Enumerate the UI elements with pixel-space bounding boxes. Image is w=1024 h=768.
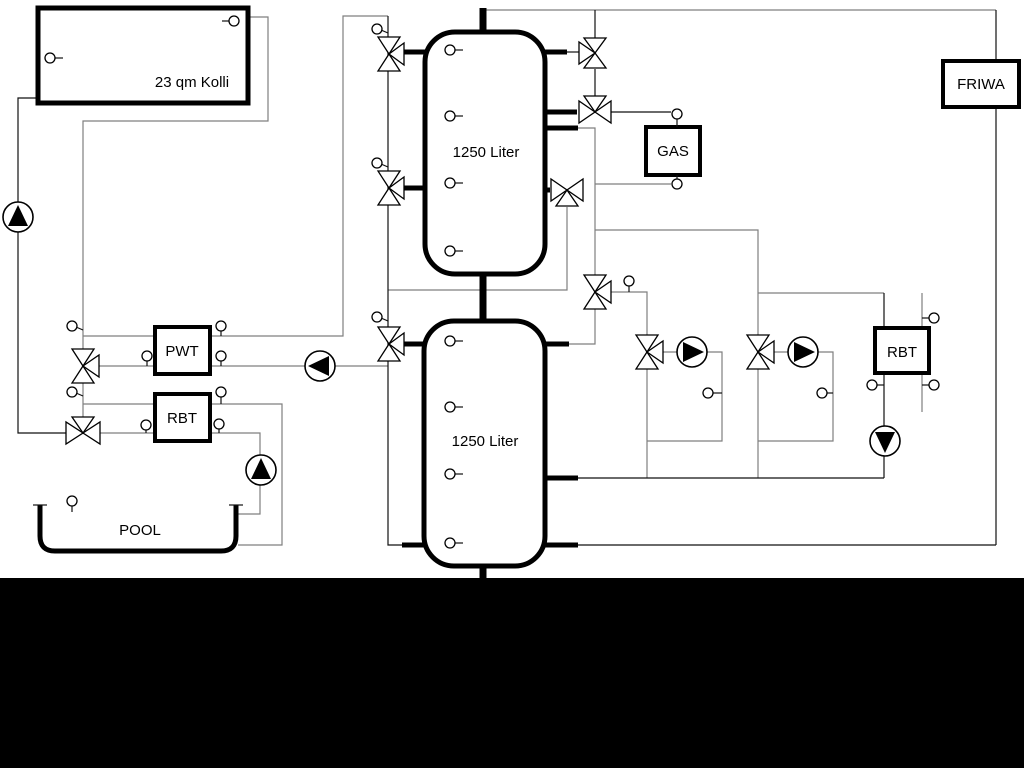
temperature-sensor-icon — [214, 419, 224, 433]
temperature-sensor-icon — [922, 313, 939, 323]
pwt-heat-exchanger: PWT — [155, 327, 210, 374]
solar-collector: 23 qm Kolli — [38, 8, 248, 103]
temperature-sensor-icon — [867, 380, 884, 390]
pump-icon — [677, 337, 707, 367]
temperature-sensor-icon — [216, 321, 226, 336]
gas-label: GAS — [657, 143, 689, 160]
rbt-right-label: RBT — [887, 344, 917, 361]
gas-boiler: GAS — [646, 127, 700, 175]
temperature-sensor-icon — [922, 380, 939, 390]
three-way-valve-icon — [378, 327, 404, 361]
pump-icon — [870, 426, 900, 456]
three-way-valve-icon — [579, 96, 611, 123]
three-way-valve-icon — [378, 37, 404, 71]
three-way-valve-icon — [378, 171, 404, 205]
temperature-sensor-icon — [703, 388, 722, 398]
pump-icon — [305, 351, 335, 381]
footer-black-band — [0, 578, 1024, 768]
pwt-label: PWT — [165, 343, 198, 360]
friwa-module: FRIWA — [943, 61, 1019, 107]
tank-bottom-label: 1250 Liter — [452, 433, 519, 450]
pump-icon — [246, 455, 276, 485]
three-way-valve-icon — [747, 335, 774, 369]
valve-actuator-icon — [372, 24, 388, 34]
temperature-sensor-icon — [67, 496, 77, 512]
schematic-page: 23 qm Kolli 1250 Liter 1250 Liter GAS FR… — [0, 0, 1024, 768]
friwa-label: FRIWA — [957, 76, 1005, 93]
pool-basin: POOL — [33, 505, 243, 551]
temperature-sensor-icon — [672, 109, 682, 127]
temperature-sensor-icon — [672, 175, 682, 189]
rbt-left-label: RBT — [167, 410, 197, 427]
three-way-valve-icon — [636, 335, 663, 369]
valve-actuator-icon — [372, 158, 388, 168]
tank-top-label: 1250 Liter — [453, 144, 520, 161]
three-way-valve-icon — [72, 349, 99, 383]
temperature-sensor-icon — [141, 420, 151, 433]
temperature-sensor-icon — [142, 351, 152, 366]
rbt-left-heat-exchanger: RBT — [155, 394, 210, 441]
pump-icon — [3, 202, 33, 232]
hydraulic-schematic: 23 qm Kolli 1250 Liter 1250 Liter GAS FR… — [0, 0, 1024, 768]
valve-actuator-icon — [67, 387, 83, 397]
temperature-sensor-icon — [817, 388, 833, 398]
temperature-sensor-icon — [216, 351, 226, 366]
three-way-valve-icon — [584, 275, 611, 309]
valve-actuator-icon — [624, 276, 634, 292]
buffer-tank-bottom: 1250 Liter — [424, 321, 545, 566]
pool-label: POOL — [119, 522, 161, 539]
buffer-tank-top: 1250 Liter — [425, 32, 545, 274]
rbt-right-heat-exchanger: RBT — [875, 328, 929, 373]
three-way-valve-icon — [551, 179, 583, 206]
temperature-sensor-icon — [216, 387, 226, 404]
valve-actuator-icon — [67, 321, 83, 331]
valve-actuator-icon — [372, 312, 388, 322]
collector-label: 23 qm Kolli — [155, 74, 229, 91]
three-way-valve-icon — [579, 38, 606, 68]
three-way-valve-icon — [66, 417, 100, 444]
pump-icon — [788, 337, 818, 367]
